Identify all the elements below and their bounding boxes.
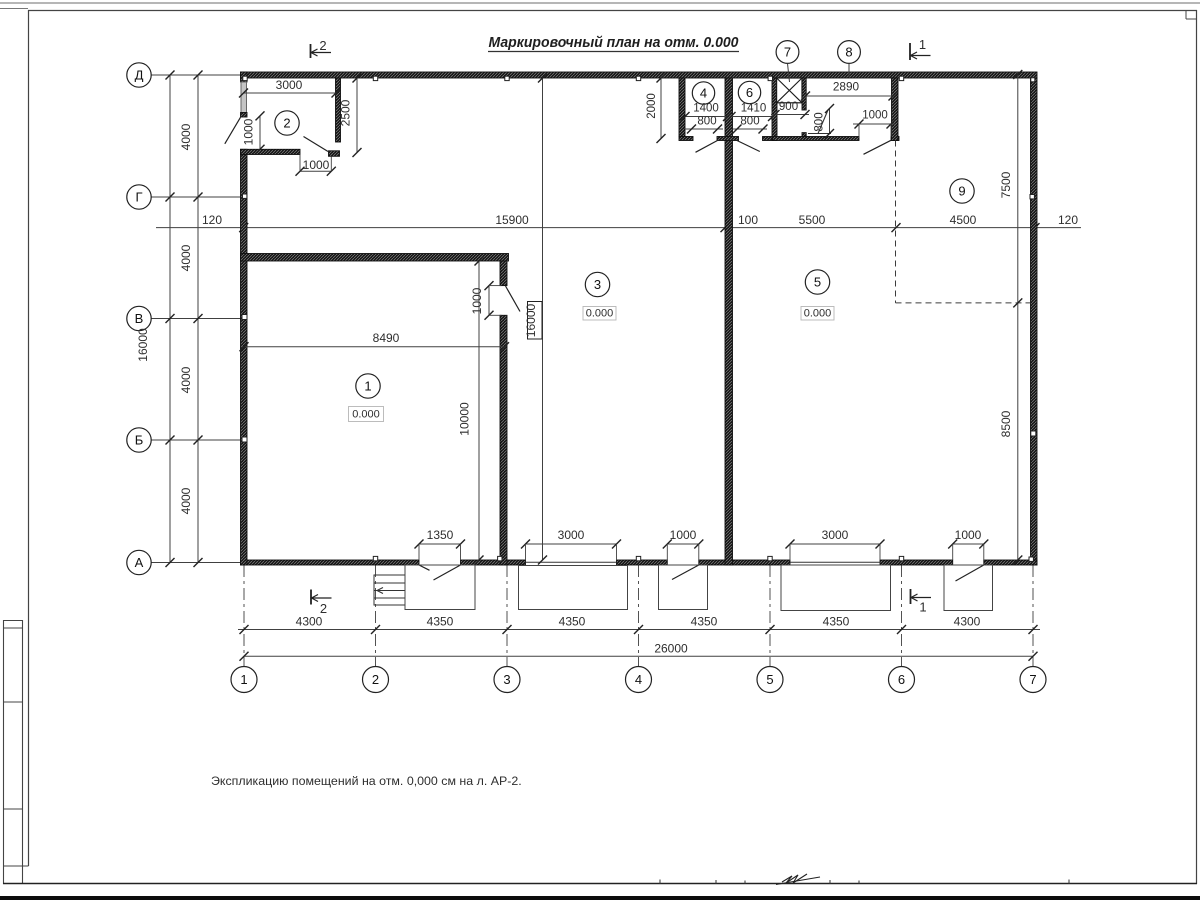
- svg-text:5500: 5500: [799, 213, 826, 227]
- svg-text:А: А: [135, 555, 144, 570]
- svg-text:1400: 1400: [693, 103, 719, 115]
- svg-text:100: 100: [738, 213, 758, 227]
- svg-text:Г: Г: [135, 190, 142, 205]
- svg-text:4500: 4500: [950, 213, 977, 227]
- svg-text:Д: Д: [135, 68, 144, 83]
- svg-text:4300: 4300: [954, 615, 981, 629]
- svg-text:9: 9: [958, 184, 965, 199]
- svg-text:2: 2: [319, 38, 326, 53]
- svg-text:Б: Б: [135, 433, 144, 448]
- svg-text:1350: 1350: [427, 528, 454, 542]
- svg-text:900: 900: [779, 101, 798, 113]
- svg-text:4000: 4000: [179, 487, 193, 514]
- svg-text:1: 1: [364, 379, 371, 394]
- svg-text:4300: 4300: [296, 615, 323, 629]
- svg-text:6: 6: [746, 85, 753, 100]
- svg-text:3000: 3000: [822, 528, 849, 542]
- svg-text:15900: 15900: [495, 213, 529, 227]
- svg-text:1: 1: [240, 672, 247, 687]
- svg-text:3: 3: [503, 672, 510, 687]
- svg-text:2: 2: [320, 601, 327, 616]
- svg-text:В: В: [135, 311, 144, 326]
- svg-text:800: 800: [814, 112, 826, 131]
- svg-text:1: 1: [919, 600, 926, 615]
- svg-text:7: 7: [1029, 672, 1036, 687]
- svg-text:2: 2: [372, 672, 379, 687]
- svg-text:800: 800: [697, 116, 716, 128]
- svg-text:Маркировочный план на отм. 0.0: Маркировочный план на отм. 0.000: [489, 35, 739, 51]
- svg-text:8490: 8490: [373, 331, 400, 345]
- svg-text:16000: 16000: [136, 328, 150, 362]
- svg-text:120: 120: [202, 213, 222, 227]
- svg-text:4: 4: [700, 86, 707, 101]
- svg-text:2000: 2000: [646, 93, 658, 119]
- svg-text:1000: 1000: [303, 158, 330, 172]
- svg-text:7500: 7500: [999, 171, 1013, 198]
- svg-text:1410: 1410: [741, 103, 767, 115]
- svg-text:4350: 4350: [559, 615, 586, 629]
- svg-text:0.000: 0.000: [352, 409, 380, 421]
- svg-text:4350: 4350: [691, 615, 718, 629]
- svg-text:800: 800: [740, 116, 759, 128]
- svg-text:5: 5: [814, 275, 821, 290]
- svg-text:4350: 4350: [427, 615, 454, 629]
- svg-text:1000: 1000: [242, 118, 256, 145]
- svg-text:Экспликацию помещений на отм.: Экспликацию помещений на отм. 0,000 см н…: [211, 774, 522, 788]
- svg-text:8500: 8500: [999, 410, 1013, 437]
- svg-text:1: 1: [919, 37, 926, 52]
- svg-text:1000: 1000: [470, 287, 484, 314]
- svg-text:3: 3: [594, 277, 601, 292]
- svg-text:26000: 26000: [654, 642, 688, 656]
- svg-text:6: 6: [898, 672, 905, 687]
- svg-text:7: 7: [784, 45, 791, 60]
- svg-text:4350: 4350: [823, 615, 850, 629]
- svg-text:3000: 3000: [276, 78, 303, 92]
- svg-text:1000: 1000: [862, 110, 888, 122]
- svg-text:1000: 1000: [955, 528, 982, 542]
- svg-text:5: 5: [766, 672, 773, 687]
- svg-text:3000: 3000: [558, 528, 585, 542]
- svg-text:4000: 4000: [179, 366, 193, 393]
- svg-text:4000: 4000: [179, 244, 193, 271]
- svg-text:2: 2: [283, 116, 290, 131]
- svg-text:0.000: 0.000: [586, 308, 614, 320]
- svg-text:10000: 10000: [458, 402, 472, 436]
- svg-text:1000: 1000: [670, 528, 697, 542]
- svg-text:4000: 4000: [179, 123, 193, 150]
- svg-text:2500: 2500: [339, 99, 353, 126]
- svg-text:4: 4: [635, 672, 642, 687]
- svg-text:2890: 2890: [833, 80, 860, 94]
- svg-text:120: 120: [1058, 213, 1078, 227]
- svg-text:8: 8: [845, 45, 852, 60]
- svg-text:16000: 16000: [524, 303, 538, 337]
- svg-text:0.000: 0.000: [804, 308, 832, 320]
